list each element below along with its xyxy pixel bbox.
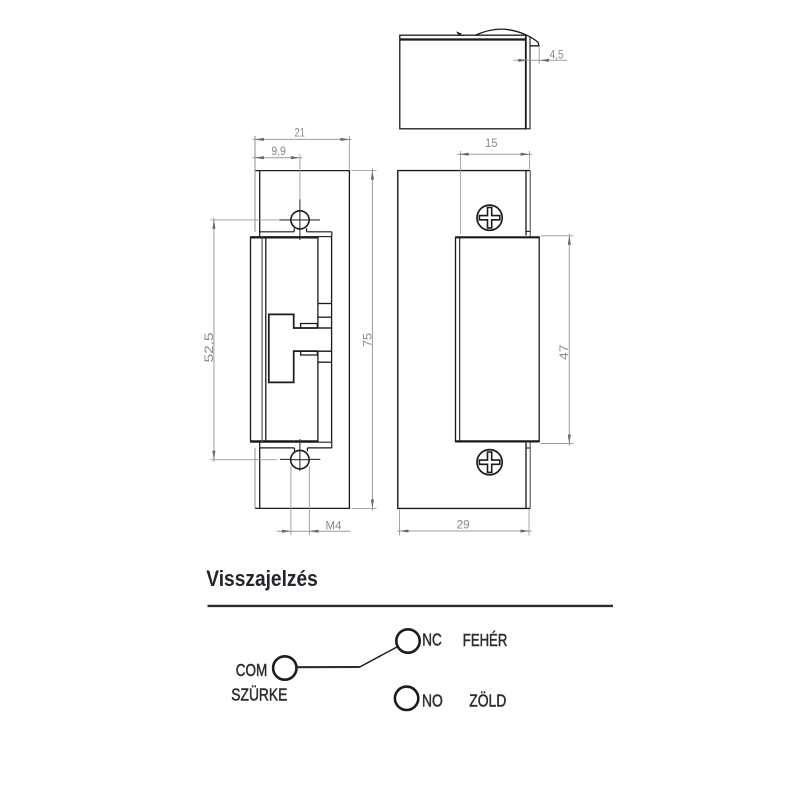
svg-text:4,5: 4,5: [550, 47, 564, 61]
svg-text:52,5: 52,5: [202, 332, 216, 363]
svg-text:29: 29: [457, 518, 470, 532]
svg-text:NO: NO: [422, 690, 443, 710]
svg-text:75: 75: [361, 333, 375, 347]
svg-text:ZÖLD: ZÖLD: [469, 690, 506, 710]
svg-text:M4: M4: [326, 518, 342, 532]
svg-text:21: 21: [294, 126, 305, 140]
svg-text:Visszajelzés: Visszajelzés: [206, 566, 317, 591]
svg-text:47: 47: [557, 345, 571, 361]
svg-text:SZÜRKE: SZÜRKE: [231, 685, 287, 705]
svg-text:COM: COM: [236, 660, 268, 680]
svg-text:9,9: 9,9: [271, 144, 286, 158]
svg-text:15: 15: [485, 136, 498, 150]
svg-text:NC: NC: [422, 630, 442, 650]
svg-text:FEHÉR: FEHÉR: [463, 630, 508, 650]
